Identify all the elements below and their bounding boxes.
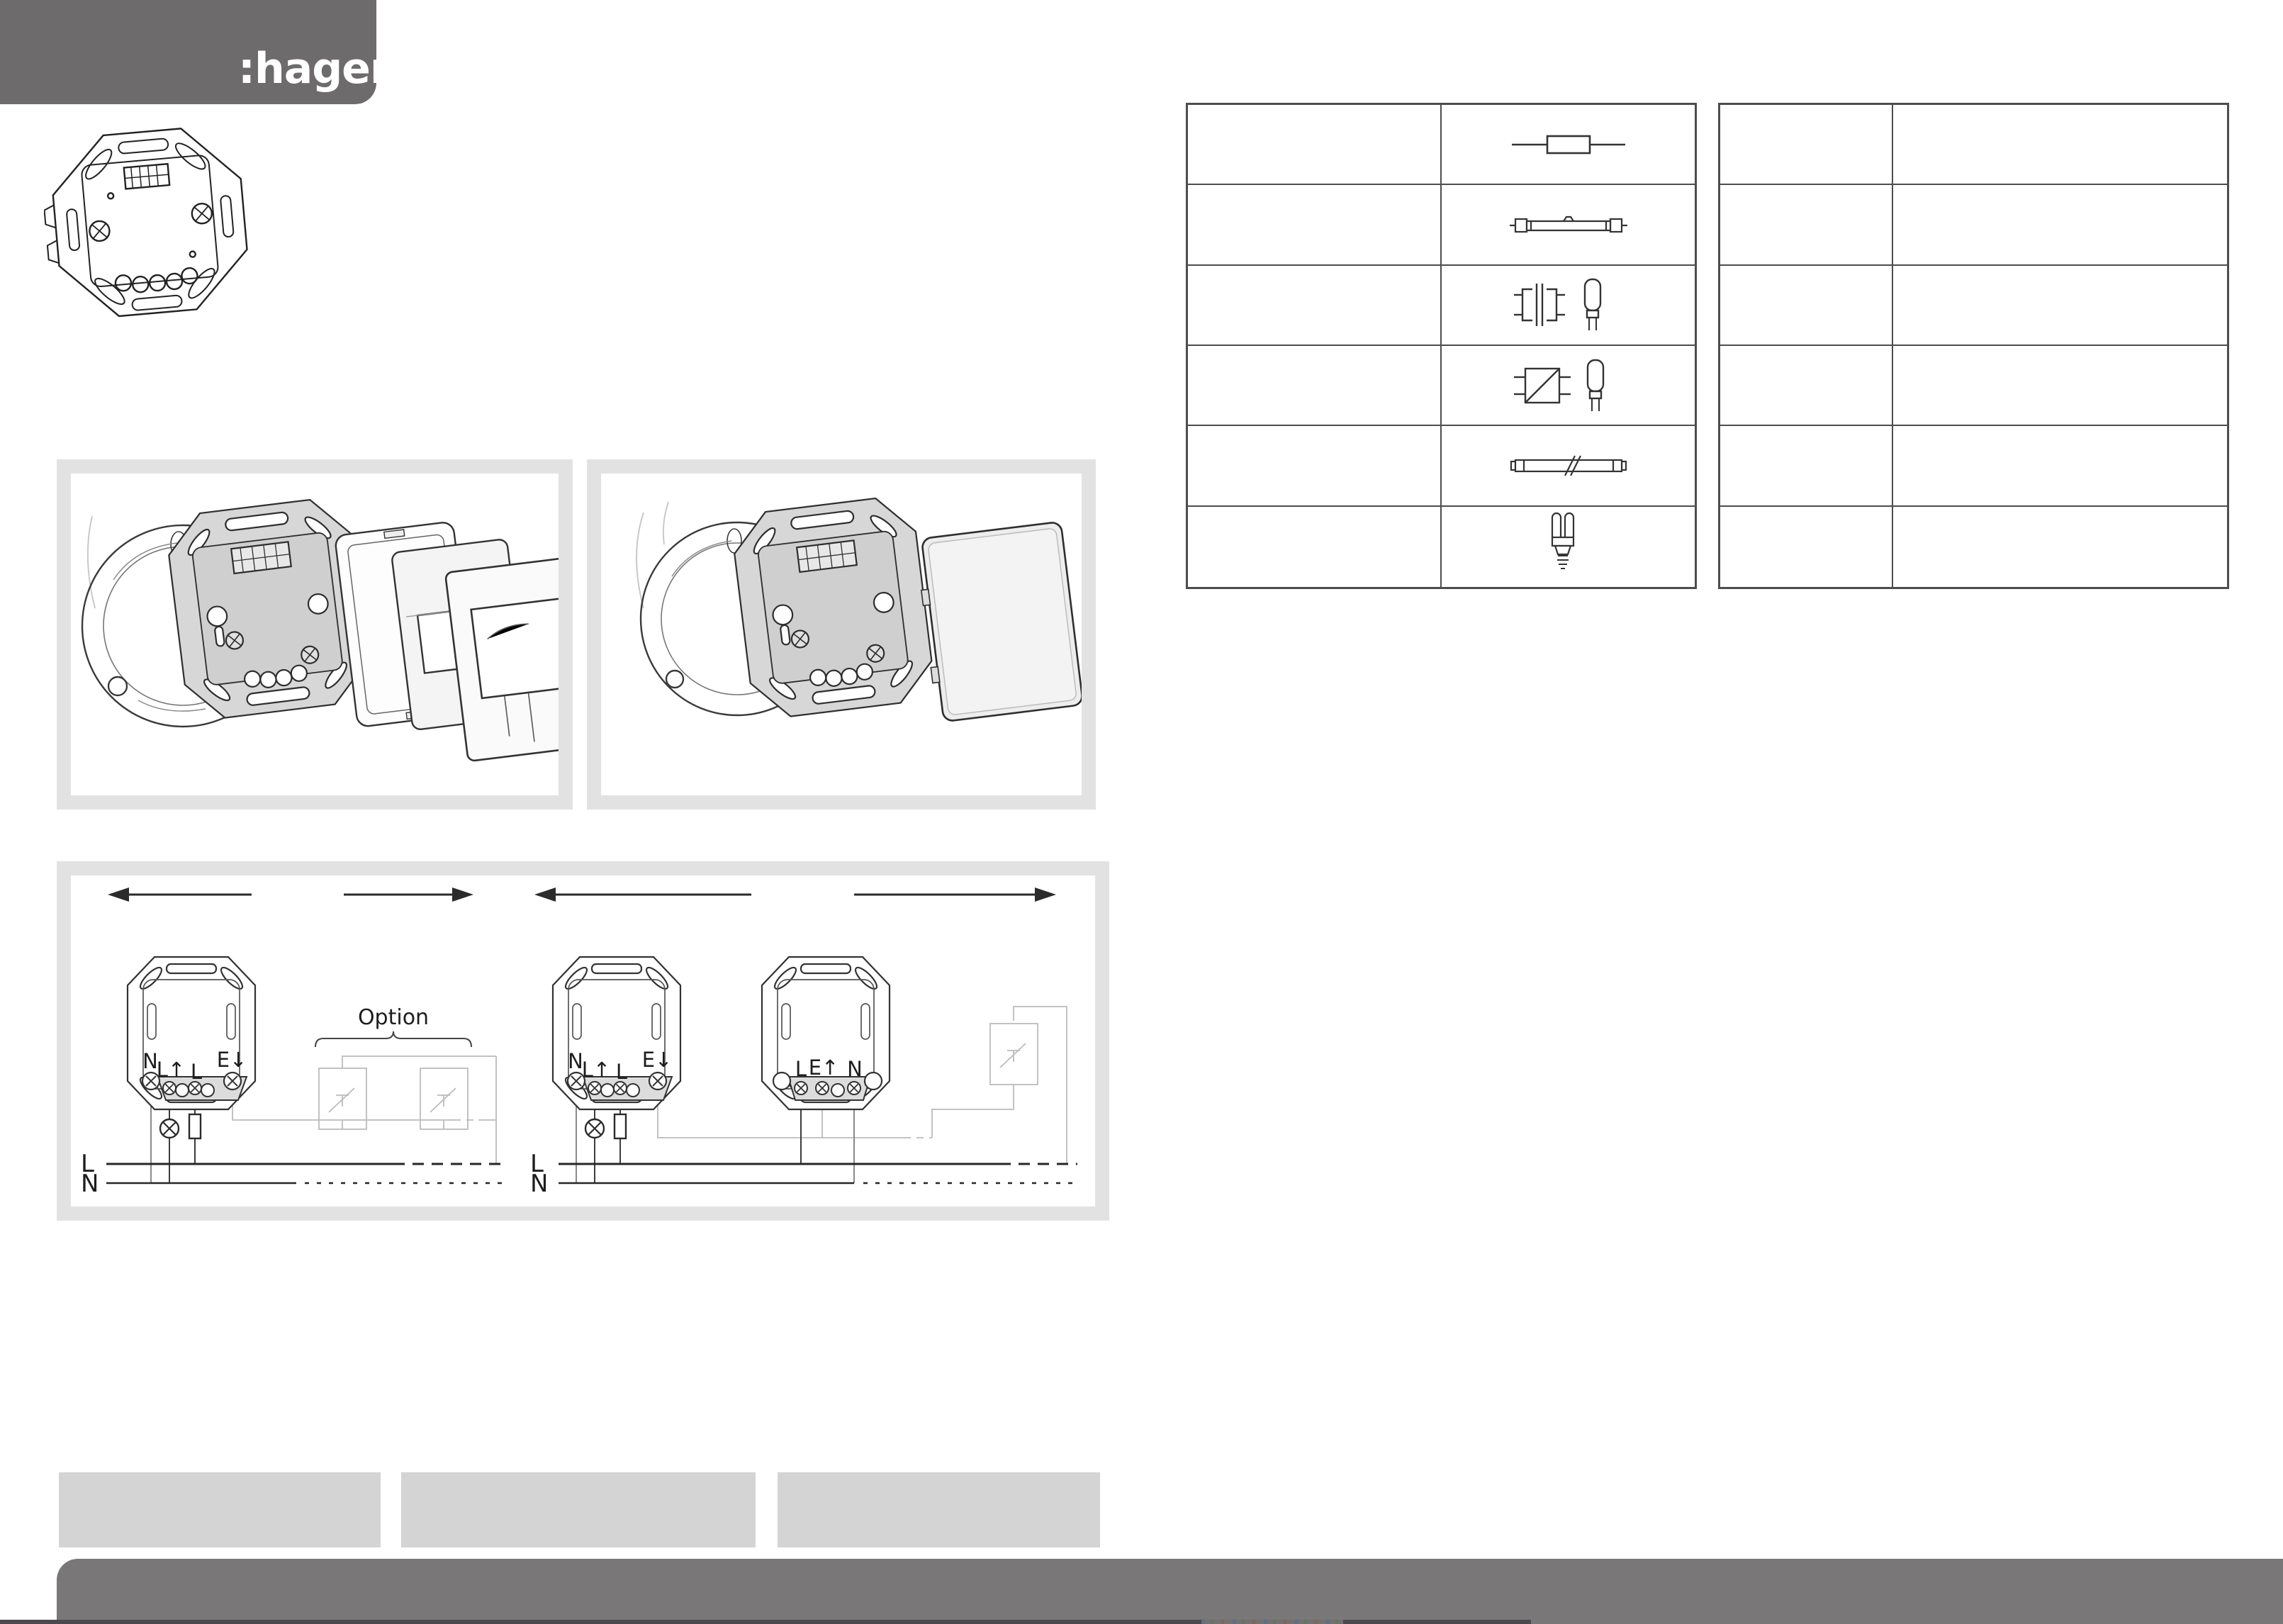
wiring-diagram-2: N L↑ L E↓ L E↑ N L <box>530 957 1077 1198</box>
bus-lines <box>559 1164 1077 1183</box>
terminal-screw-e-up <box>816 1082 829 1094</box>
terminal-label: E↓ <box>217 1048 247 1072</box>
placeholder-box-3 <box>778 1472 1100 1547</box>
table-cell <box>1720 426 1893 506</box>
instruction-sheet-page: :hager <box>0 0 2283 1624</box>
push-button-icon <box>990 1024 1038 1085</box>
option-circuit <box>232 1056 496 1164</box>
assembly-panel-2 <box>587 459 1096 810</box>
ratings-table-empty <box>1718 103 2229 589</box>
electronic-transformer-halogen-icon <box>1508 350 1629 421</box>
terminal-label: N <box>847 1057 863 1081</box>
bus-label-n: N <box>81 1170 99 1198</box>
fuse-symbol-icon <box>615 1114 626 1138</box>
assembly-panel-2-canvas <box>601 474 1082 795</box>
lamp-icon-cell <box>1442 185 1695 265</box>
terminal-label: L <box>616 1060 627 1084</box>
lamp-icon-cell <box>1442 266 1695 346</box>
product-insert-drawing <box>44 119 251 332</box>
terminal-screw-l <box>795 1082 807 1094</box>
terminal-screw-e-down <box>224 1073 241 1090</box>
terminal-label: L <box>191 1060 202 1084</box>
table-cell <box>1720 346 1893 426</box>
assembly-panel-1 <box>57 459 573 810</box>
wiring-diagram-1: Option <box>81 957 505 1198</box>
lamp-icon-cell <box>1442 507 1695 587</box>
table-cell <box>1720 185 1893 265</box>
print-marks <box>1201 1619 1343 1624</box>
terminal-label: L↑ <box>582 1058 610 1082</box>
terminal-label: E↑ <box>809 1055 839 1080</box>
conventional-transformer-halogen-icon <box>1508 269 1629 340</box>
lamp-load-cell <box>1188 105 1442 185</box>
insert-mechanism-icon <box>730 494 936 721</box>
bus-label-n: N <box>530 1170 548 1198</box>
insert-line-art-icon <box>44 119 251 332</box>
placeholder-box-2 <box>401 1472 756 1547</box>
terminal-screw-e-down <box>649 1073 666 1090</box>
terminal-screw <box>601 1084 614 1097</box>
lamp-load-cell <box>1188 507 1442 587</box>
footer-bar <box>57 1559 2283 1624</box>
terminal-screw <box>831 1084 844 1097</box>
terminal-label: N <box>142 1049 158 1073</box>
bus-lines <box>106 1164 505 1183</box>
wiring-diagrams: Option <box>71 875 1095 1206</box>
table-cell <box>1720 105 1893 185</box>
rocker-cover-icon <box>915 522 1082 722</box>
terminal-label: N <box>568 1049 583 1073</box>
table-cell <box>1893 346 2227 426</box>
table-cell <box>1893 185 2227 265</box>
table-cell <box>1720 266 1893 346</box>
terminal-screw-n <box>848 1082 860 1094</box>
wiring-panel: Option <box>57 861 1109 1221</box>
hager-logo: :hager <box>238 44 390 94</box>
exploded-view-frame-cover <box>71 474 559 795</box>
terminal-screw <box>176 1084 189 1097</box>
terminal-screw-l-up <box>163 1082 176 1094</box>
cfl-lamp-icon <box>1508 508 1629 586</box>
lamp-icon-cell <box>1442 346 1695 426</box>
lamp-load-cell <box>1188 266 1442 346</box>
option-brace <box>315 1031 471 1047</box>
lamp-icon-cell <box>1442 105 1695 185</box>
lamp-load-cell <box>1188 346 1442 426</box>
fuse-symbol-icon <box>189 1114 201 1138</box>
exploded-view-rocker <box>601 474 1082 795</box>
option-label: Option <box>358 1005 429 1030</box>
cover-frame-icon <box>445 556 559 761</box>
terminal-label: L↑ <box>157 1058 185 1082</box>
plate-screw <box>865 1073 882 1090</box>
insert-mechanism-icon <box>164 495 371 722</box>
table-cell <box>1893 507 2227 587</box>
lamp-load-cell <box>1188 185 1442 265</box>
table-cell <box>1893 266 2227 346</box>
incandescent-lamp-icon <box>1508 109 1629 180</box>
wiring-canvas: Option <box>71 875 1095 1206</box>
terminal-label: E↓ <box>642 1048 673 1072</box>
table-cell <box>1893 426 2227 506</box>
fluorescent-tube-icon <box>1508 430 1629 501</box>
rocker-direction-arrows <box>108 887 1056 902</box>
table-cell <box>1720 507 1893 587</box>
terminal-screw-l-up <box>588 1082 601 1094</box>
terminal-screw <box>627 1084 639 1097</box>
lamp-load-cell <box>1188 426 1442 506</box>
lamp-icon-cell <box>1442 426 1695 506</box>
terminal-label: L <box>795 1057 807 1081</box>
table-cell <box>1893 105 2227 185</box>
placeholder-box-1 <box>59 1472 381 1547</box>
lamp-load-table <box>1186 103 1697 589</box>
halogen-lamp-230v-icon <box>1508 189 1629 260</box>
plate-screw <box>773 1073 790 1090</box>
terminal-screw <box>201 1084 214 1097</box>
assembly-panel-1-canvas <box>71 474 559 795</box>
